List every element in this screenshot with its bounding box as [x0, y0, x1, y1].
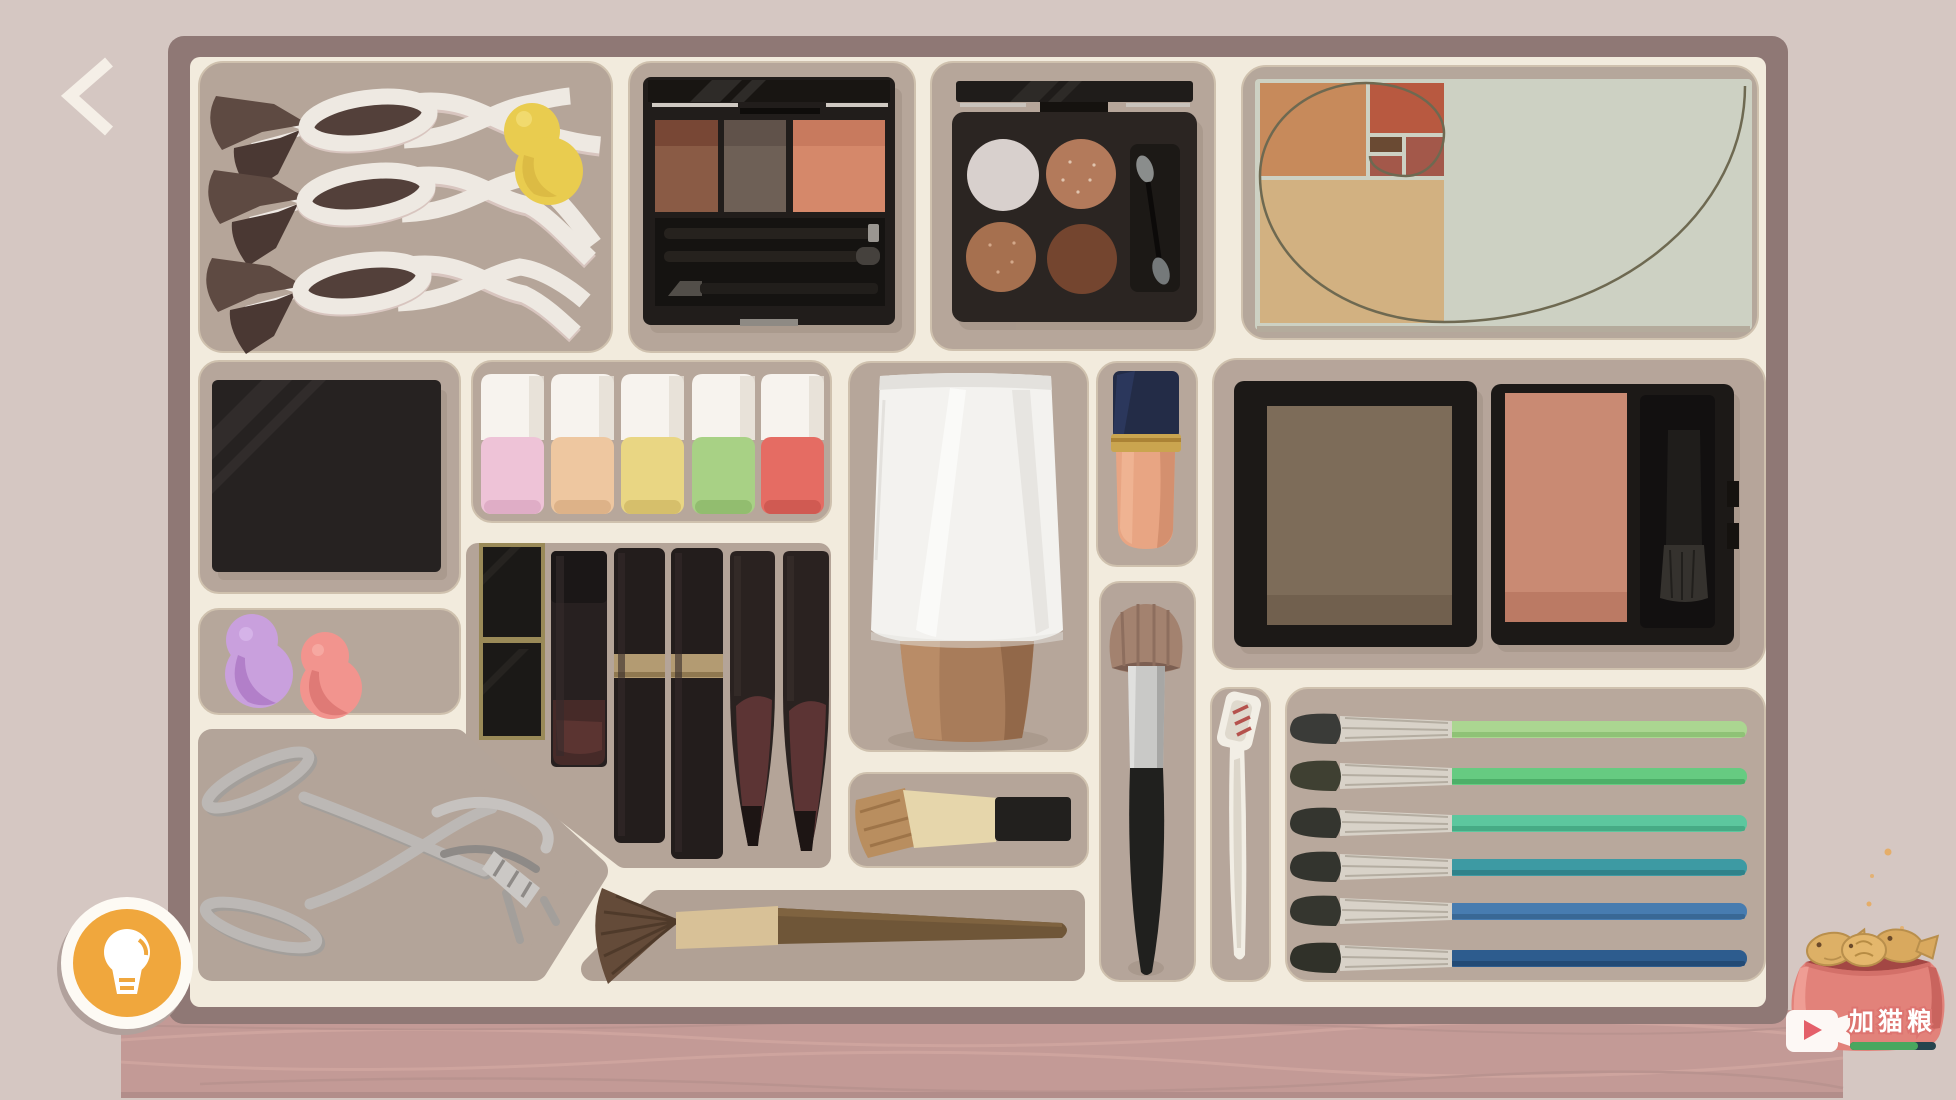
svg-text:加猫粮: 加猫粮 [1848, 1007, 1936, 1036]
